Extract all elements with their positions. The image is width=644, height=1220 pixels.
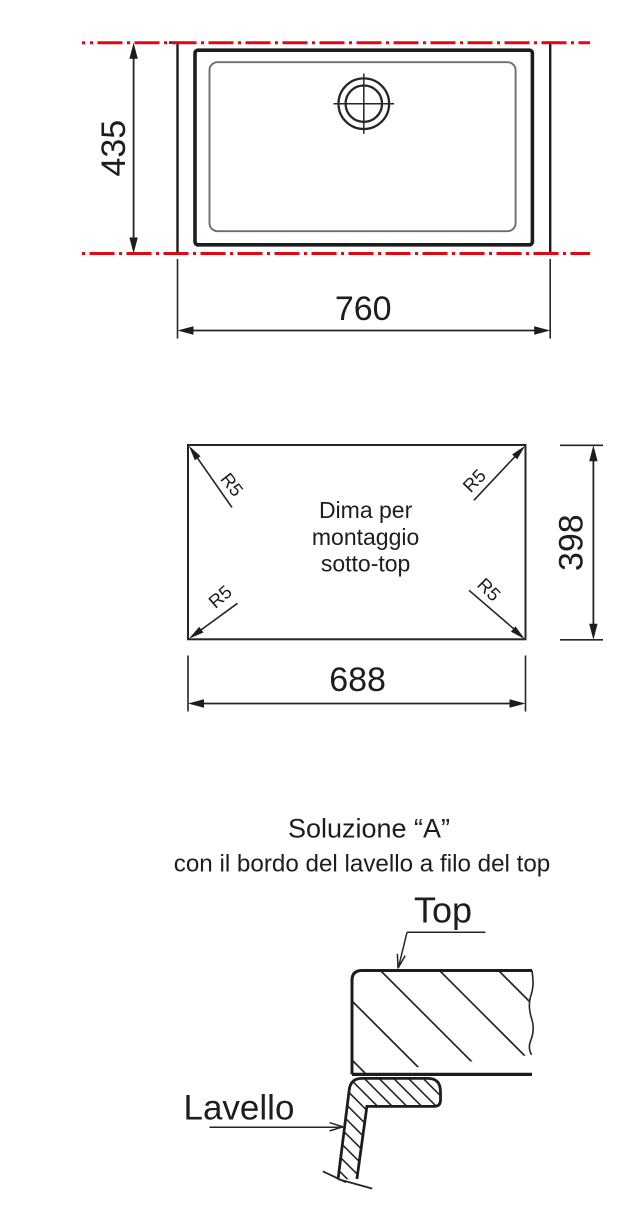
svg-text:760: 760 [335,290,392,328]
svg-text:sotto-top: sotto-top [321,551,411,577]
svg-text:398: 398 [552,514,590,571]
svg-text:688: 688 [329,661,386,699]
svg-text:Lavello: Lavello [184,1089,295,1128]
svg-text:montaggio: montaggio [312,524,419,550]
svg-text:Dima per: Dima per [319,497,413,523]
svg-text:Soluzione “A”: Soluzione “A” [288,814,450,844]
svg-text:Top: Top [414,890,472,931]
svg-text:con il bordo del lavello a fil: con il bordo del lavello a filo del top [174,851,551,878]
svg-text:435: 435 [95,120,133,177]
